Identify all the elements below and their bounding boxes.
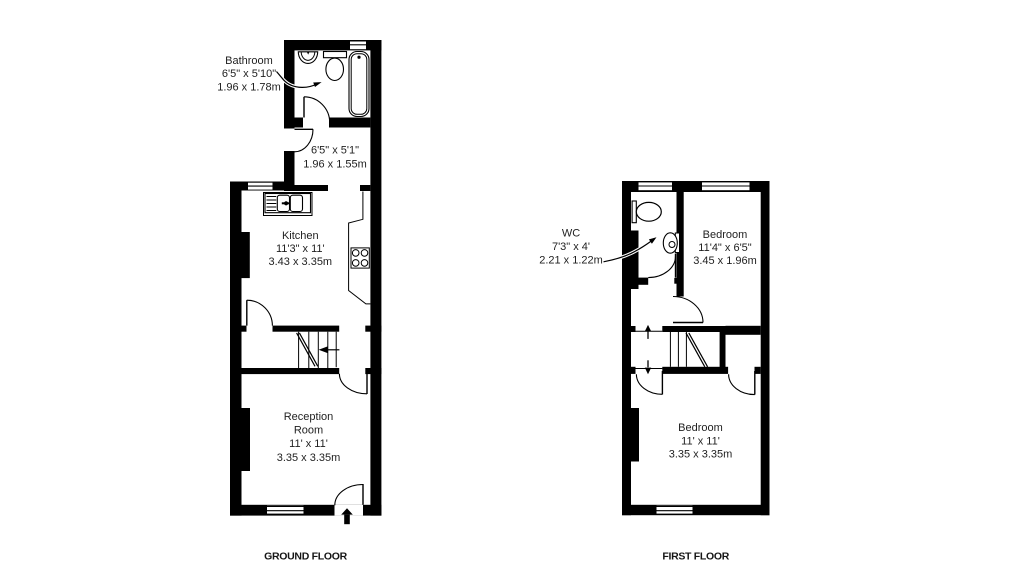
svg-text:Reception: Reception — [284, 411, 334, 423]
svg-text:FIRST FLOOR: FIRST FLOOR — [662, 551, 729, 563]
svg-text:GROUND FLOOR: GROUND FLOOR — [264, 551, 347, 563]
svg-text:3.43 x 3.35m: 3.43 x 3.35m — [269, 256, 333, 268]
svg-text:3.35 x 3.35m: 3.35 x 3.35m — [277, 452, 341, 464]
svg-text:3.45 x 1.96m: 3.45 x 1.96m — [693, 255, 757, 267]
svg-text:2.21 x 1.22m: 2.21 x 1.22m — [539, 254, 603, 266]
svg-text:3.35 x 3.35m: 3.35 x 3.35m — [669, 449, 733, 461]
svg-text:Bedroom: Bedroom — [703, 229, 748, 241]
svg-text:11' x 11': 11' x 11' — [681, 435, 720, 447]
svg-text:11'3" x 11': 11'3" x 11' — [276, 243, 325, 255]
svg-text:Kitchen: Kitchen — [282, 230, 319, 242]
svg-text:Bathroom: Bathroom — [225, 55, 273, 67]
svg-text:WC: WC — [562, 228, 580, 240]
svg-text:Bedroom: Bedroom — [678, 422, 723, 434]
svg-text:6'5" x 5'10": 6'5" x 5'10" — [222, 68, 276, 80]
svg-text:11'4" x 6'5": 11'4" x 6'5" — [698, 242, 751, 254]
svg-text:11' x 11': 11' x 11' — [289, 438, 328, 450]
svg-text:6'5" x 5'1": 6'5" x 5'1" — [311, 145, 359, 157]
svg-text:1.96 x 1.55m: 1.96 x 1.55m — [303, 158, 367, 170]
svg-text:Room: Room — [294, 425, 323, 437]
svg-text:7'3" x 4': 7'3" x 4' — [552, 241, 590, 253]
svg-text:1.96 x 1.78m: 1.96 x 1.78m — [217, 82, 281, 94]
